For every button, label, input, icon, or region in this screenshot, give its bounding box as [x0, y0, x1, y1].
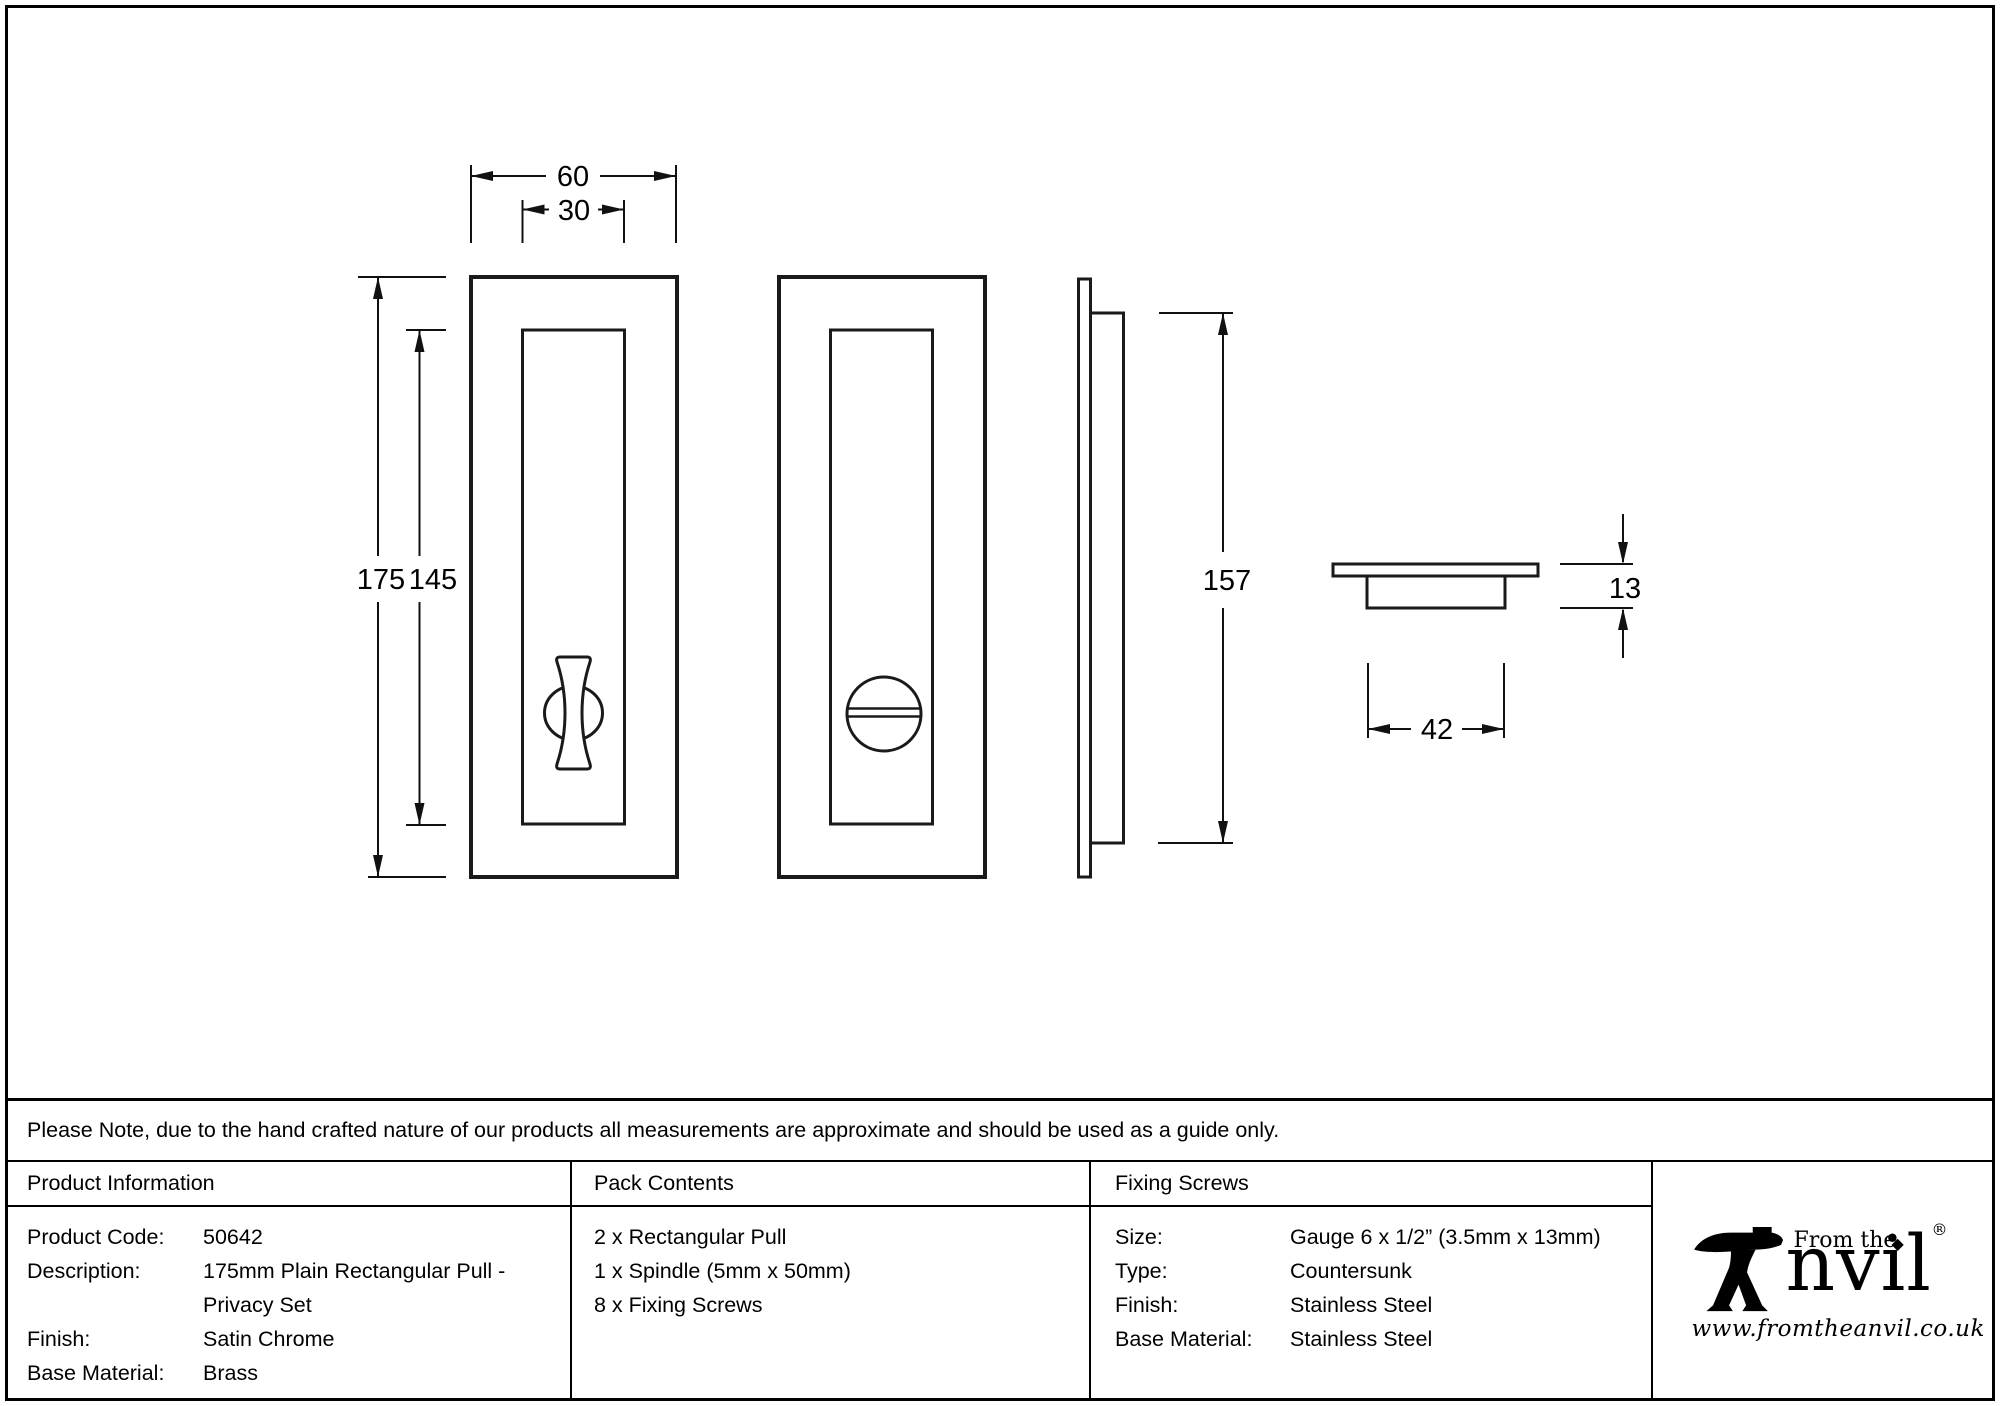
dim-157-label: 157 — [1203, 565, 1251, 597]
dim-145-label: 145 — [409, 564, 457, 596]
dim-30-arrow-right — [602, 205, 624, 215]
technical-drawing: 60 30 175 — [8, 8, 1992, 1098]
dim-157-arrow-top — [1218, 313, 1228, 335]
screw-type-value: Countersunk — [1290, 1254, 1412, 1288]
header-fixing-screws-label: Fixing Screws — [1091, 1171, 1249, 1196]
description-label-spacer — [8, 1288, 203, 1322]
dim-13-label: 13 — [1609, 573, 1641, 605]
base-material-label: Base Material: — [8, 1356, 203, 1390]
fixing-screws-cell: Size: Gauge 6 x 1/2” (3.5mm x 13mm) Type… — [1091, 1207, 1653, 1398]
pack-item-screws: 8 x Fixing Screws — [572, 1288, 1089, 1322]
pack-item-pulls: 2 x Rectangular Pull — [572, 1220, 1089, 1254]
anvil-icon — [1692, 1226, 1787, 1313]
dim-30-arrow-left — [523, 205, 545, 215]
screw-finish-row: Finish: Stainless Steel — [1091, 1288, 1651, 1322]
pack-contents-cell: 2 x Rectangular Pull 1 x Spindle (5mm x … — [572, 1207, 1091, 1398]
base-material-row: Base Material: Brass — [8, 1356, 570, 1390]
header-pack-contents: Pack Contents — [572, 1162, 1091, 1207]
pack-item-spindle: 1 x Spindle (5mm x 50mm) — [572, 1254, 1089, 1288]
product-code-row: Product Code: 50642 — [8, 1220, 570, 1254]
dim-42-arrow-right — [1482, 724, 1504, 734]
dim-60-label: 60 — [557, 161, 589, 193]
finish-label: Finish: — [8, 1322, 203, 1356]
dim-30-label: 30 — [558, 195, 590, 227]
product-code-label: Product Code: — [8, 1220, 203, 1254]
spec-sheet: { "drawing": { "dimensions": { "front_wi… — [0, 0, 2000, 1406]
screw-base-material-label: Base Material: — [1091, 1322, 1290, 1356]
front-view-release-pull — [779, 277, 985, 877]
sheet-frame: 60 30 175 — [5, 5, 1995, 1401]
description-row: Description: 175mm Plain Rectangular Pul… — [8, 1254, 570, 1288]
screw-size-row: Size: Gauge 6 x 1/2” (3.5mm x 13mm) — [1091, 1220, 1651, 1254]
description-value-line1: 175mm Plain Rectangular Pull - — [203, 1254, 533, 1288]
screw-type-row: Type: Countersunk — [1091, 1254, 1651, 1288]
logo-anvil-wordmark: nvil — [1786, 1226, 1932, 1303]
dim-175-label: 175 — [357, 564, 405, 596]
screw-base-material-row: Base Material: Stainless Steel — [1091, 1322, 1651, 1356]
dim-157-arrow-bottom — [1218, 821, 1228, 843]
screw-finish-value: Stainless Steel — [1290, 1288, 1432, 1322]
logo-website-url: www.fromtheanvil.co.uk — [1692, 1316, 1954, 1342]
dim-60-arrow-left — [471, 171, 493, 181]
header-pack-contents-label: Pack Contents — [572, 1171, 734, 1196]
disclaimer-text: Please Note, due to the hand crafted nat… — [8, 1118, 1279, 1143]
emergency-release-rose — [847, 677, 921, 751]
finish-value: Satin Chrome — [203, 1322, 533, 1356]
dim-145-arrow-bottom — [415, 803, 425, 825]
dim-145-arrow-top — [415, 330, 425, 352]
screw-size-value: Gauge 6 x 1/2” (3.5mm x 13mm) — [1290, 1220, 1601, 1254]
drawing-canvas: 60 30 175 — [8, 8, 1992, 1098]
section-face-plate — [1333, 564, 1538, 576]
dim-42-label: 42 — [1421, 714, 1453, 746]
screw-size-label: Size: — [1091, 1220, 1290, 1254]
from-the-anvil-logo: From the ◆ ® nvil www.fromtheanvil.co.uk — [1692, 1226, 1954, 1348]
screw-type-label: Type: — [1091, 1254, 1290, 1288]
base-material-value: Brass — [203, 1356, 533, 1390]
header-product-information: Product Information — [8, 1162, 572, 1207]
screw-finish-label: Finish: — [1091, 1288, 1290, 1322]
side-recessed-body — [1091, 313, 1124, 843]
description-label: Description: — [8, 1254, 203, 1288]
screw-base-material-value: Stainless Steel — [1290, 1322, 1432, 1356]
finish-row: Finish: Satin Chrome — [8, 1322, 570, 1356]
description-value-line2: Privacy Set — [203, 1288, 533, 1322]
section-top-view — [1333, 564, 1538, 608]
product-information-cell: Product Code: 50642 Description: 175mm P… — [8, 1207, 572, 1398]
dim-175-arrow-bottom — [373, 855, 383, 877]
section-body — [1367, 576, 1505, 608]
registered-trademark-icon: ® — [1932, 1220, 1948, 1239]
brand-logo-cell: From the ◆ ® nvil www.fromtheanvil.co.uk — [1653, 1162, 1992, 1398]
disclaimer-row: Please Note, due to the hand crafted nat… — [8, 1098, 1992, 1160]
description-row-continued: Privacy Set — [8, 1288, 570, 1322]
dim-13-arrow-up — [1618, 608, 1628, 630]
dim-42-arrow-left — [1368, 724, 1390, 734]
dim-13-arrow-down — [1618, 542, 1628, 564]
dim-60-arrow-right — [654, 171, 676, 181]
header-product-information-label: Product Information — [8, 1171, 215, 1196]
side-profile-view — [1079, 279, 1124, 877]
product-code-value: 50642 — [203, 1220, 533, 1254]
dim-175-arrow-top — [373, 277, 383, 299]
side-face-plate — [1079, 279, 1091, 877]
front-view-thumbturn-pull — [471, 277, 677, 877]
spec-table: Product Information Pack Contents Fixing… — [8, 1160, 1992, 1398]
header-fixing-screws: Fixing Screws — [1091, 1162, 1653, 1207]
